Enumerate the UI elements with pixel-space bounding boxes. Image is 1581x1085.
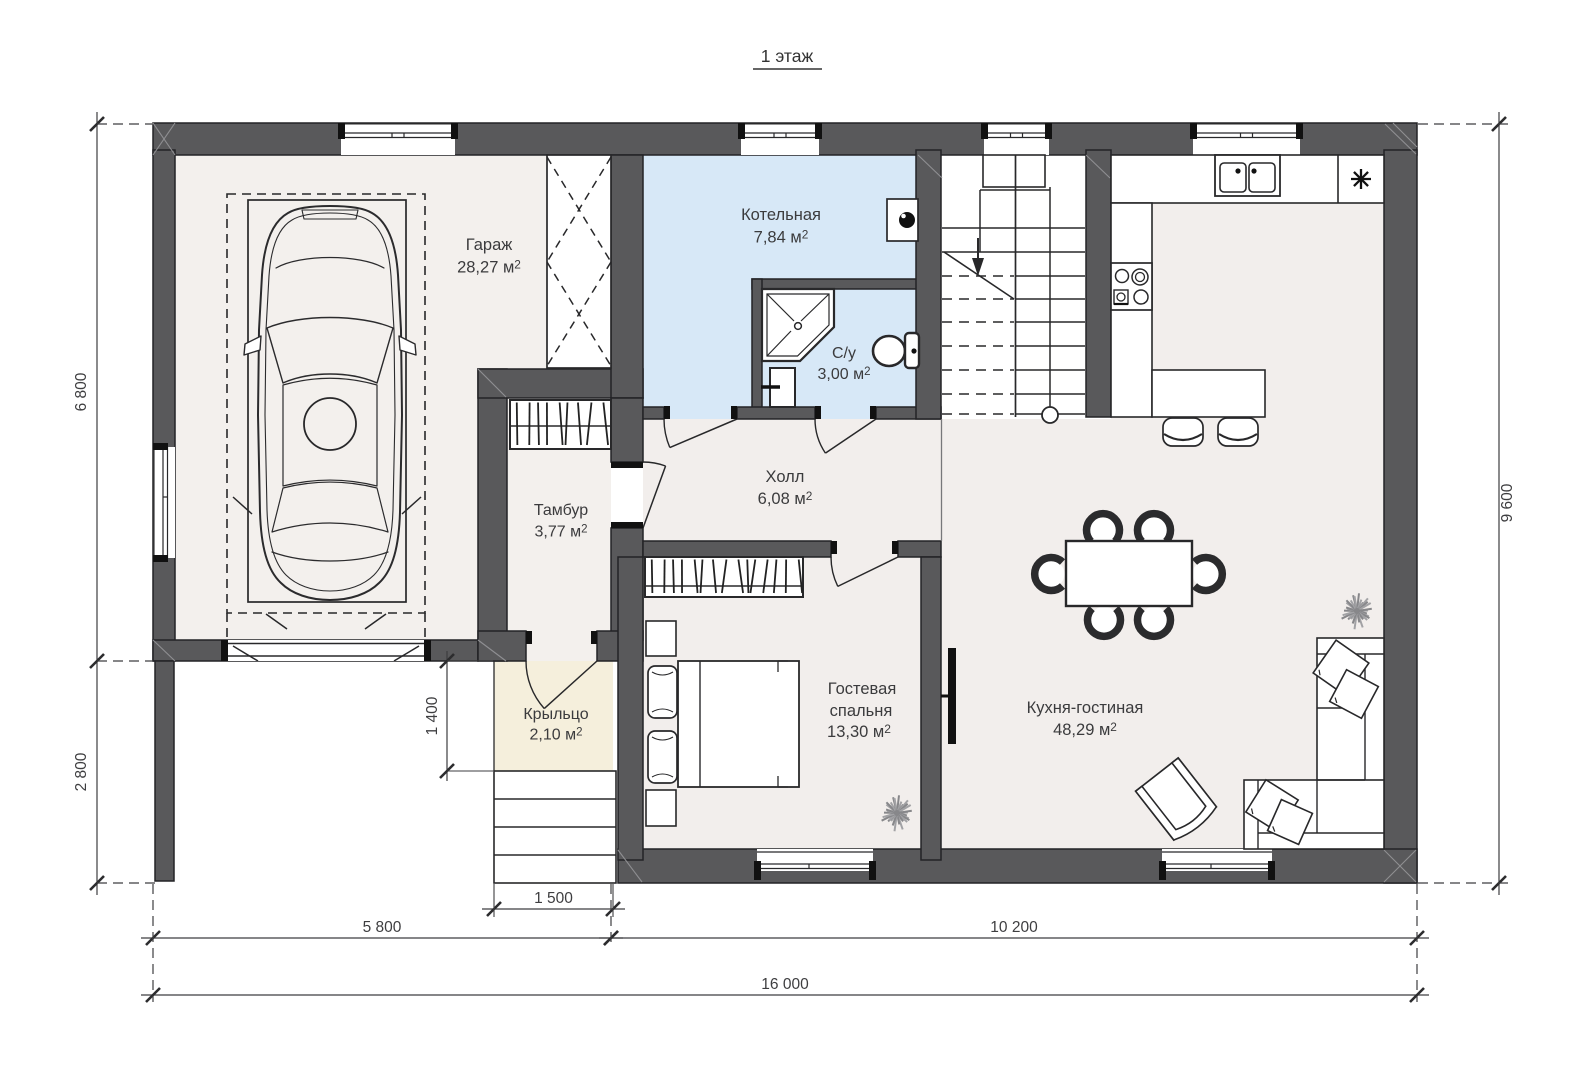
svg-text:13,30 м2: 13,30 м2 bbox=[827, 722, 891, 741]
svg-text:28,27 м2: 28,27 м2 bbox=[457, 258, 521, 277]
svg-text:Котельная: Котельная bbox=[741, 206, 821, 224]
svg-text:1 500: 1 500 bbox=[534, 890, 573, 907]
svg-text:2,10 м2: 2,10 м2 bbox=[530, 727, 583, 744]
svg-text:1 400: 1 400 bbox=[424, 696, 441, 735]
svg-text:48,29 м2: 48,29 м2 bbox=[1053, 720, 1117, 739]
svg-text:С/у: С/у bbox=[832, 345, 856, 362]
svg-text:3,77 м2: 3,77 м2 bbox=[535, 524, 588, 541]
svg-text:2 800: 2 800 bbox=[73, 752, 90, 791]
svg-text:10 200: 10 200 bbox=[990, 919, 1038, 936]
svg-text:6,08 м2: 6,08 м2 bbox=[758, 489, 813, 508]
svg-text:Гостевая: Гостевая bbox=[828, 680, 897, 698]
svg-text:6 800: 6 800 bbox=[73, 372, 90, 411]
svg-text:Тамбур: Тамбур bbox=[534, 502, 588, 519]
svg-text:Кухня-гостиная: Кухня-гостиная bbox=[1027, 699, 1144, 717]
svg-text:Крыльцо: Крыльцо bbox=[523, 706, 588, 723]
svg-text:5 800: 5 800 bbox=[363, 919, 402, 936]
svg-text:Гараж: Гараж bbox=[466, 236, 513, 254]
svg-text:7,84 м2: 7,84 м2 bbox=[754, 228, 809, 247]
svg-text:9 600: 9 600 bbox=[1499, 483, 1516, 522]
svg-text:Холл: Холл bbox=[766, 468, 805, 486]
svg-text:спальня: спальня bbox=[830, 702, 893, 720]
svg-text:1 этаж: 1 этаж bbox=[761, 46, 814, 66]
svg-text:3,00 м2: 3,00 м2 bbox=[818, 366, 871, 383]
svg-text:16 000: 16 000 bbox=[761, 976, 809, 993]
